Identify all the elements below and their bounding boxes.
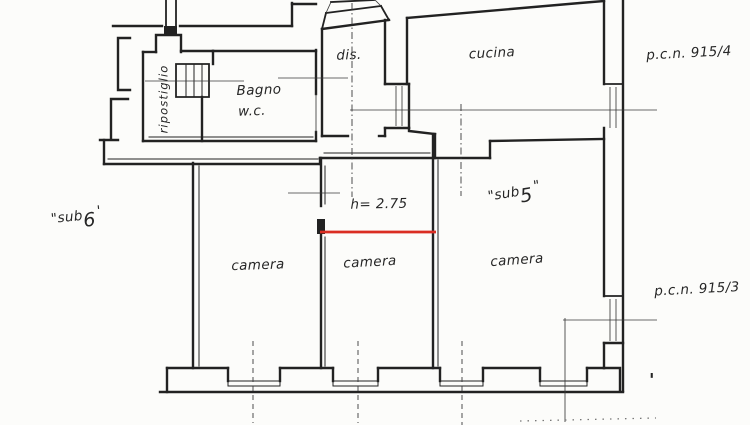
room-label-dis: dis.: [336, 49, 362, 63]
height-annotation: h= 2.75: [350, 198, 407, 212]
paper-background: [0, 0, 750, 425]
sub5-number: 5: [519, 184, 535, 208]
stray-pen-mark: ': [649, 372, 655, 390]
unit-label-sub6: "sub6': [50, 203, 102, 227]
sub6-word: "sub: [50, 208, 83, 227]
room-label-cucina: cucina: [468, 46, 515, 62]
room-label-ripostiglio: ripostiglio: [158, 65, 170, 134]
room-label-camera-1: camera: [231, 258, 285, 273]
room-label-wc: w.c.: [238, 105, 266, 119]
room-label-bagno: Bagno: [236, 83, 281, 98]
floor-plan-drawing: [0, 0, 750, 425]
sub6-number: 6: [82, 209, 97, 232]
room-label-camera-2: camera: [343, 255, 397, 271]
floor-plan-page: ripostiglio Bagno w.c. dis. cucina p.c.n…: [0, 0, 750, 425]
